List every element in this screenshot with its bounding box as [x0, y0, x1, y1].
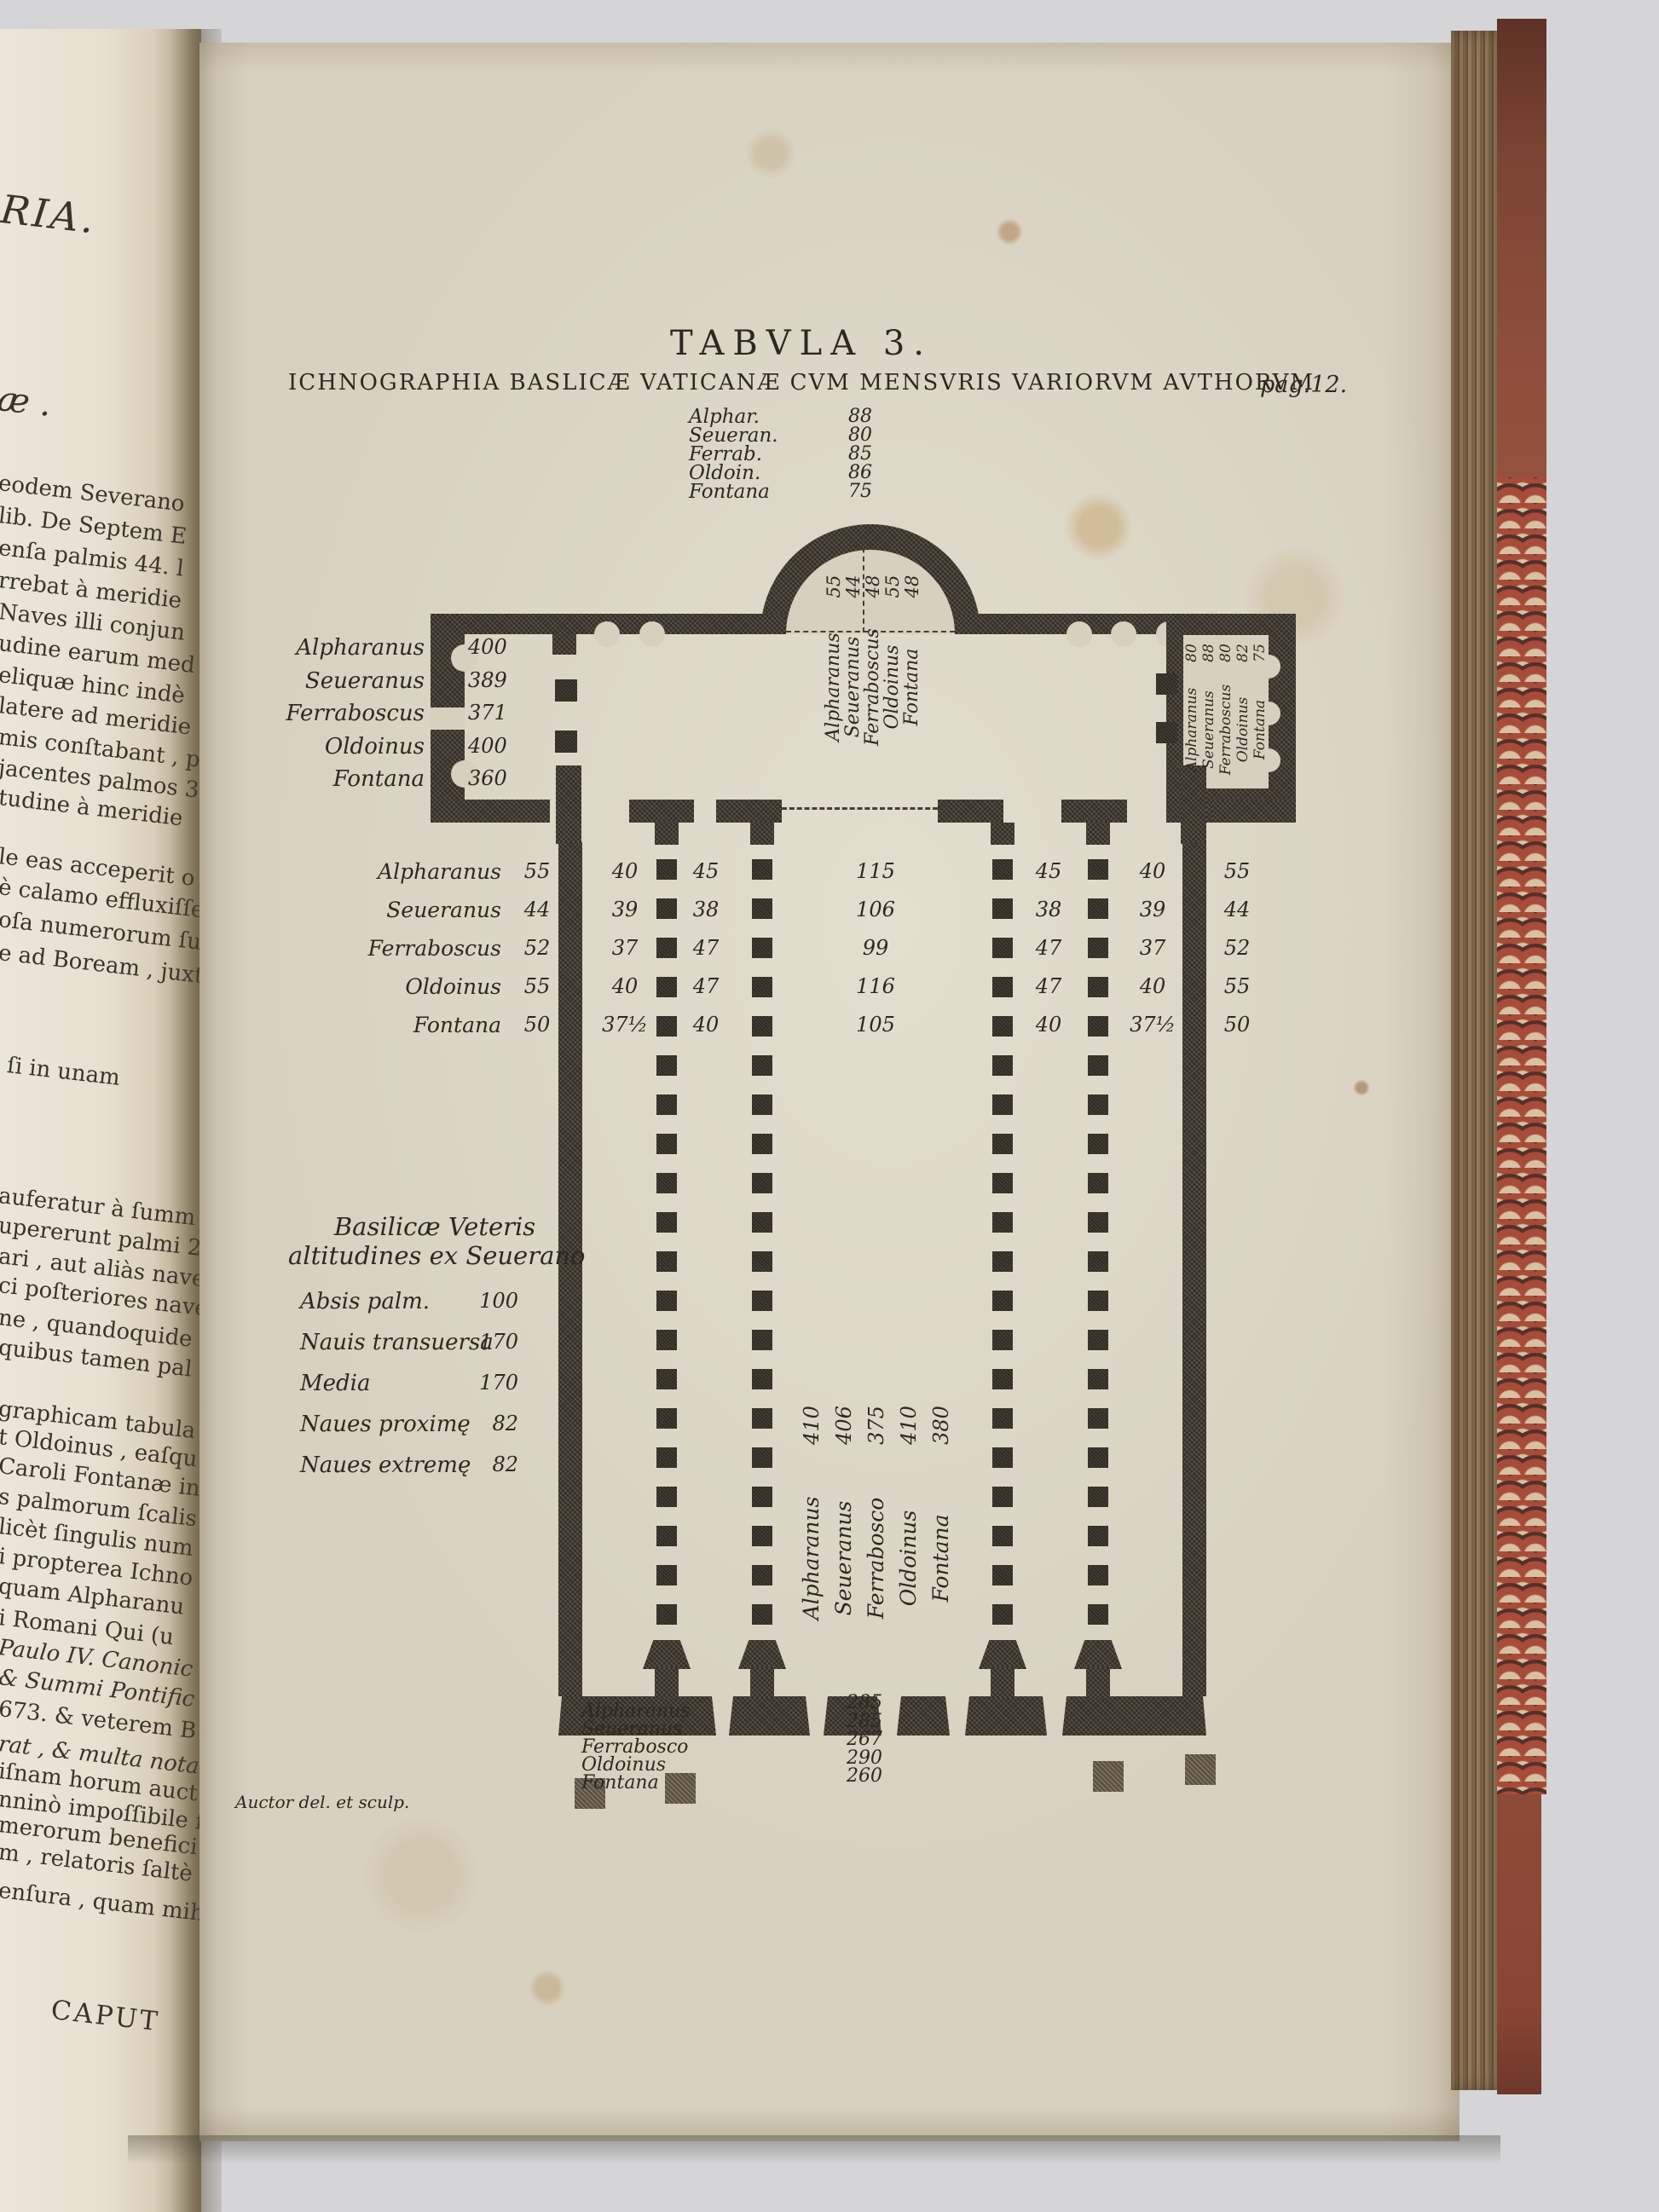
transept-bottom-wall	[629, 800, 694, 823]
nave-width-value: 55	[1199, 859, 1275, 883]
marbled-cover-edge	[1497, 477, 1546, 1794]
transept-left-value: 360	[468, 766, 507, 790]
nave-outer-wall-right	[1182, 842, 1206, 1696]
colonnade-column	[992, 1173, 1013, 1193]
nave-width-author: Ferraboscus	[331, 936, 501, 961]
nave-length-name: Seueranus	[833, 1481, 855, 1635]
nave-width-value: 40	[1114, 859, 1191, 883]
transept-pier	[1156, 722, 1177, 743]
altitude-label: Naues extremę	[300, 1453, 471, 1478]
nave-width-value: 106	[837, 898, 914, 921]
colonnade-column	[992, 1526, 1013, 1546]
colonnade-column	[752, 1447, 772, 1468]
nave-wall-cross-pier	[556, 765, 581, 844]
colonnade-column	[752, 1212, 772, 1233]
colonnade-column	[656, 1212, 677, 1233]
transept-left-value: 400	[468, 734, 507, 758]
colonnade-column	[752, 1565, 772, 1585]
colonnade-column	[1088, 1173, 1108, 1193]
transept-bottom-wall	[1212, 800, 1296, 823]
engraver-credit: Auctor del. et sculp.	[235, 1792, 409, 1812]
colonnade-column	[1088, 977, 1108, 997]
pier-stub	[750, 823, 774, 845]
wall-niche	[639, 621, 665, 647]
colonnade-column	[752, 1173, 772, 1193]
facade-wall-segment	[1062, 1696, 1206, 1736]
nave-width-author: Seueranus	[331, 898, 501, 922]
nave-width-value: 47	[668, 936, 744, 960]
colonnade-column	[992, 1369, 1013, 1389]
transept-right-name: Fontana	[1249, 666, 1271, 794]
transept-pier	[555, 679, 577, 702]
apse-width-value: 75	[848, 481, 872, 502]
colonnade-column	[1088, 1134, 1108, 1154]
nave-length-value: 410	[898, 1387, 920, 1464]
colonnade-column	[752, 938, 772, 958]
cover-edge-top	[1497, 19, 1546, 479]
nave-length-name: Alpharanus	[801, 1481, 823, 1635]
colonnade-column	[1088, 1291, 1108, 1311]
nave-width-value: 55	[1199, 974, 1275, 998]
transept-left-name: Alpharanus	[254, 635, 425, 661]
altitude-value: 100	[459, 1289, 518, 1313]
colonnade-base-stub	[750, 1667, 774, 1698]
altitude-label: Media	[300, 1371, 370, 1396]
facade-author: Fontana	[581, 1772, 659, 1793]
transept-left-name: Ferraboscus	[254, 701, 425, 726]
colonnade-column	[1088, 938, 1108, 958]
colonnade-column	[1088, 1526, 1108, 1546]
nave-width-value: 52	[1199, 936, 1275, 960]
nave-length-value: 406	[833, 1387, 855, 1464]
nave-width-value: 52	[499, 936, 575, 960]
nave-width-value: 55	[499, 974, 575, 998]
colonnade-column	[992, 1016, 1013, 1037]
apse-depth-value: 48	[901, 552, 923, 621]
colonnade-column	[656, 1604, 677, 1625]
nave-width-value: 50	[499, 1013, 575, 1037]
colonnade-column	[752, 859, 772, 880]
colonnade-column	[752, 1526, 772, 1546]
nave-width-value: 44	[499, 898, 575, 921]
nave-width-value: 47	[1010, 974, 1087, 998]
colonnade-column	[1088, 1016, 1108, 1037]
altitude-label: Naues proximę	[300, 1412, 471, 1437]
colonnade-column	[656, 1408, 677, 1429]
book-bottom-shadow	[128, 2135, 1500, 2164]
nave-width-value: 99	[837, 936, 914, 960]
nave-length-value: 375	[865, 1387, 887, 1464]
colonnade-column	[992, 1212, 1013, 1233]
colonnade-column	[656, 1565, 677, 1585]
plate-title: ICHNOGRAPHIA BASLICÆ VATICANÆ CVM MENSVR…	[281, 370, 1321, 396]
nave-length-value: 410	[801, 1387, 823, 1464]
plate-heading: TABVLA 3.	[656, 324, 946, 363]
nave-width-value: 40	[668, 1013, 744, 1037]
transept-left-value: 389	[468, 668, 507, 692]
facade-wall-segment	[729, 1696, 810, 1736]
page-block-fore-edge	[1451, 31, 1499, 2090]
colonnade-column	[656, 1369, 677, 1389]
colonnade-column	[752, 1251, 772, 1272]
colonnade-column	[656, 1447, 677, 1468]
colonnade-column	[656, 1016, 677, 1037]
colonnade-column	[656, 1330, 677, 1350]
nave-width-value: 37½	[1114, 1013, 1191, 1037]
nave-width-author: Fontana	[331, 1013, 501, 1037]
transept-left-door-gap	[431, 707, 465, 730]
nave-width-value: 40	[1114, 974, 1191, 998]
colonnade-column	[992, 1330, 1013, 1350]
colonnade-column	[992, 1408, 1013, 1429]
nave-width-value: 38	[668, 898, 744, 921]
colonnade-column	[1088, 1447, 1108, 1468]
transept-bottom-wall	[716, 800, 782, 823]
cover-edge-bottom	[1497, 1794, 1541, 2094]
nave-width-value: 47	[668, 974, 744, 998]
colonnade-column	[752, 1330, 772, 1350]
colonnade-column	[656, 938, 677, 958]
colonnade-column	[752, 977, 772, 997]
colonnade-column	[1088, 1604, 1108, 1625]
colonnade-column	[1088, 1094, 1108, 1115]
transept-pier	[1156, 673, 1177, 695]
wall-niche	[1111, 621, 1136, 647]
pier-stub	[1086, 823, 1110, 845]
wall-niche	[1066, 621, 1092, 647]
colonnade-column	[1088, 1055, 1108, 1076]
colonnade-column	[992, 1251, 1013, 1272]
transept-left-name: Seueranus	[254, 668, 425, 694]
nave-width-value: 39	[1114, 898, 1191, 921]
colonnade-column	[752, 1094, 772, 1115]
colonnade-column	[1088, 1369, 1108, 1389]
colonnade-column	[752, 1408, 772, 1429]
nave-width-value: 44	[1199, 898, 1275, 921]
nave-length-name: Ferrabosco	[865, 1481, 887, 1635]
colonnade-column	[656, 1173, 677, 1193]
colonnade-column	[656, 1055, 677, 1076]
colonnade-base-stub	[655, 1667, 679, 1698]
transept-left-value: 400	[468, 635, 507, 659]
colonnade-column	[1088, 1408, 1108, 1429]
colonnade-column	[992, 1291, 1013, 1311]
nave-width-value: 47	[1010, 936, 1087, 960]
transept-left-name: Fontana	[254, 766, 425, 792]
colonnade-column	[656, 977, 677, 997]
colonnade-column	[1088, 1565, 1108, 1585]
nave-width-value: 40	[1010, 1013, 1087, 1037]
transept-bottom-wall	[938, 800, 1003, 823]
colonnade-column	[656, 1251, 677, 1272]
colonnade-column	[992, 1094, 1013, 1115]
colonnade-column	[1088, 1251, 1108, 1272]
transept-bottom-wall	[1061, 800, 1127, 823]
nave-length-name: Oldoinus	[898, 1481, 920, 1635]
porch-column	[665, 1773, 696, 1804]
nave-width-value: 55	[499, 859, 575, 883]
transept-left-value: 371	[468, 701, 507, 725]
colonnade-column	[992, 1565, 1013, 1585]
colonnade-column	[992, 938, 1013, 958]
facade-wall-segment	[897, 1696, 950, 1736]
facing-page-text-line: RIA.	[0, 186, 99, 242]
nave-width-value: 105	[837, 1013, 914, 1037]
apse-author-name: Fontana	[901, 615, 923, 759]
photograph-of-open-book: RIA.æ .eodem Severanolib. De Septem Eenſ…	[0, 0, 1659, 2212]
colonnade-column	[752, 1487, 772, 1507]
colonnade-column	[1088, 1212, 1108, 1233]
colonnade-column	[656, 898, 677, 919]
colonnade-column	[992, 859, 1013, 880]
nave-width-author: Alpharanus	[331, 859, 501, 884]
nave-width-value: 45	[668, 859, 744, 883]
colonnade-column	[752, 1134, 772, 1154]
facade-wall-segment	[965, 1696, 1047, 1736]
altitudes-title-line1: Basilicæ Veteris	[307, 1212, 563, 1241]
colonnade-column	[992, 1487, 1013, 1507]
colonnade-column	[992, 898, 1013, 919]
facing-page-text-line: CAPUT	[49, 1995, 161, 2037]
colonnade-column	[656, 1134, 677, 1154]
colonnade-column	[992, 977, 1013, 997]
colonnade-column	[992, 1604, 1013, 1625]
pier-stub	[655, 823, 679, 845]
altitude-value: 82	[459, 1412, 518, 1435]
colonnade-base-stub	[1086, 1667, 1110, 1698]
colonnade-column	[1088, 859, 1108, 880]
colonnade-column	[656, 1094, 677, 1115]
colonnade-base-stub	[991, 1667, 1014, 1698]
apse-width-label: Fontana	[689, 481, 770, 503]
nave-width-value: 116	[837, 974, 914, 998]
colonnade-column	[992, 1134, 1013, 1154]
colonnade-column	[752, 1291, 772, 1311]
altitudes-title-line2: altitudines ex Seuerano	[288, 1241, 581, 1270]
wall-niche	[594, 621, 620, 647]
colonnade-column	[752, 898, 772, 919]
nave-width-value: 37	[587, 936, 663, 960]
facade-value: 260	[847, 1765, 882, 1787]
porch-column	[1093, 1761, 1124, 1792]
pier-stub	[991, 823, 1014, 845]
colonnade-column	[752, 1369, 772, 1389]
colonnade-column	[752, 1016, 772, 1037]
nave-width-value: 115	[837, 859, 914, 883]
porch-column	[1185, 1754, 1216, 1785]
nave-width-value: 39	[587, 898, 663, 921]
nave-length-name: Fontana	[930, 1481, 952, 1635]
nave-length-value: 380	[930, 1387, 952, 1464]
altitude-label: Absis palm.	[300, 1289, 430, 1314]
transept-top-pier	[552, 634, 576, 655]
transept-bottom-wall	[431, 800, 550, 823]
nave-width-value: 38	[1010, 898, 1087, 921]
colonnade-column	[1088, 898, 1108, 919]
nave-width-value: 40	[587, 859, 663, 883]
transept-pier	[555, 731, 577, 753]
transept-left-name: Oldoinus	[254, 734, 425, 759]
colonnade-column	[992, 1447, 1013, 1468]
nave-opening-dashed	[782, 807, 938, 810]
colonnade-column	[992, 1055, 1013, 1076]
nave-width-author: Oldoinus	[331, 974, 501, 999]
facing-page-text-line: æ .	[0, 379, 54, 424]
nave-width-value: 40	[587, 974, 663, 998]
nave-width-value: 45	[1010, 859, 1087, 883]
nave-width-value: 37½	[587, 1013, 663, 1037]
colonnade-column	[1088, 1330, 1108, 1350]
colonnade-column	[1088, 1487, 1108, 1507]
colonnade-column	[656, 859, 677, 880]
colonnade-column	[752, 1055, 772, 1076]
colonnade-column	[752, 1604, 772, 1625]
altitude-value: 170	[459, 1330, 518, 1354]
nave-width-value: 37	[1114, 936, 1191, 960]
altitude-value: 82	[459, 1453, 518, 1476]
facing-page-text-line: ſi in unam	[6, 1053, 122, 1091]
colonnade-column	[656, 1526, 677, 1546]
colonnade-column	[656, 1487, 677, 1507]
altitude-value: 170	[459, 1371, 518, 1395]
nave-width-value: 50	[1199, 1013, 1275, 1037]
colonnade-column	[656, 1291, 677, 1311]
